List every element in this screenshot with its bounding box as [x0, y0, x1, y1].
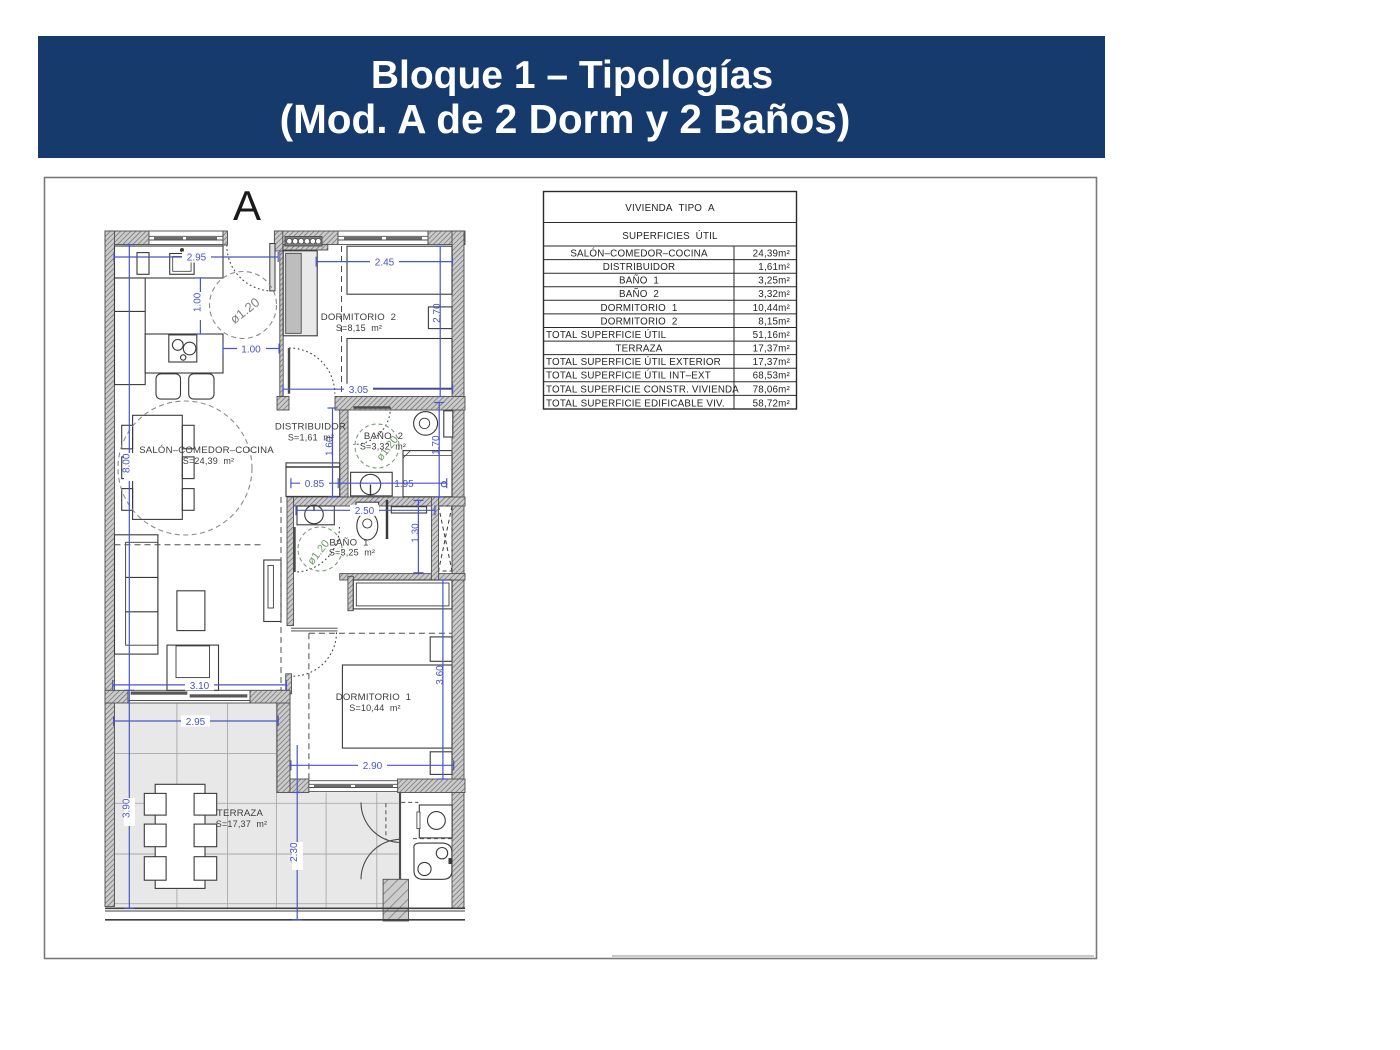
svg-text:58,72m²: 58,72m²	[753, 398, 791, 409]
svg-text:2.95: 2.95	[187, 253, 207, 264]
svg-text:VIVIENDA TIPO A: VIVIENDA TIPO A	[625, 203, 715, 214]
svg-text:3,25m²: 3,25m²	[758, 276, 790, 287]
svg-text:S=17,37 m²: S=17,37 m²	[216, 819, 267, 829]
svg-text:TOTAL SUPERFICIE ÚTIL: TOTAL SUPERFICIE ÚTIL	[546, 330, 667, 341]
svg-text:3.10: 3.10	[190, 681, 210, 692]
svg-text:DORMITORIO 1: DORMITORIO 1	[601, 303, 678, 314]
svg-text:BAÑO 2: BAÑO 2	[364, 431, 403, 442]
svg-text:1.00: 1.00	[192, 292, 203, 312]
svg-text:DORMITORIO 1: DORMITORIO 1	[336, 692, 411, 703]
svg-text:1.00: 1.00	[241, 345, 261, 356]
svg-text:1.70: 1.70	[431, 435, 442, 455]
svg-text:2.30: 2.30	[289, 842, 300, 862]
svg-text:2.90: 2.90	[363, 761, 383, 772]
svg-text:DORMITORIO 2: DORMITORIO 2	[321, 312, 396, 323]
svg-text:SUPERFICIES ÚTIL: SUPERFICIES ÚTIL	[622, 231, 718, 242]
svg-text:SALÓN–COMEDOR–COCINA: SALÓN–COMEDOR–COCINA	[139, 445, 274, 456]
svg-text:TOTAL SUPERFICIE ÚTIL INT–EXT: TOTAL SUPERFICIE ÚTIL INT–EXT	[546, 371, 711, 382]
svg-text:1,61m²: 1,61m²	[758, 262, 790, 273]
svg-text:24,39m²: 24,39m²	[753, 249, 791, 260]
svg-text:DISTRIBUIDOR: DISTRIBUIDOR	[275, 422, 346, 433]
svg-text:3.60: 3.60	[435, 665, 446, 685]
svg-text:SALÓN–COMEDOR–COCINA: SALÓN–COMEDOR–COCINA	[570, 249, 708, 260]
svg-text:1.30: 1.30	[410, 523, 421, 543]
svg-text:S=3,32 m²: S=3,32 m²	[360, 442, 406, 452]
svg-text:2.70: 2.70	[432, 303, 443, 323]
svg-text:TERRAZA: TERRAZA	[217, 808, 264, 819]
svg-text:TERRAZA: TERRAZA	[615, 344, 662, 355]
svg-text:68,53m²: 68,53m²	[753, 371, 791, 382]
svg-text:(Mod. A de 2 Dorm y 2 Baños): (Mod. A de 2 Dorm y 2 Baños)	[280, 96, 851, 142]
svg-text:78,06m²: 78,06m²	[753, 384, 791, 395]
svg-text:A: A	[233, 182, 261, 229]
svg-text:2.50: 2.50	[355, 506, 375, 517]
svg-text:3,32m²: 3,32m²	[758, 289, 790, 300]
svg-text:Bloque 1 – Tipologías: Bloque 1 – Tipologías	[371, 54, 773, 97]
svg-text:BAÑO 2: BAÑO 2	[619, 289, 659, 300]
svg-text:TOTAL SUPERFICIE EDIFICABLE VI: TOTAL SUPERFICIE EDIFICABLE VIV.	[546, 398, 725, 409]
svg-text:S=10,44 m²: S=10,44 m²	[349, 703, 400, 713]
svg-text:TOTAL SUPERFICIE ÚTIL EXTERIOR: TOTAL SUPERFICIE ÚTIL EXTERIOR	[546, 357, 721, 368]
svg-text:1.95: 1.95	[394, 479, 414, 490]
svg-text:3.90: 3.90	[121, 798, 132, 818]
svg-text:3.05: 3.05	[349, 385, 369, 396]
svg-text:8,15m²: 8,15m²	[758, 316, 790, 327]
svg-text:10,44m²: 10,44m²	[753, 303, 791, 314]
svg-text:2.45: 2.45	[375, 258, 395, 269]
svg-text:TOTAL SUPERFICIE CONSTR. VIVIE: TOTAL SUPERFICIE CONSTR. VIVIENDA	[546, 384, 739, 395]
svg-text:51,16m²: 51,16m²	[753, 330, 791, 341]
svg-text:DISTRIBUIDOR: DISTRIBUIDOR	[603, 262, 676, 273]
svg-text:S=3,25 m²: S=3,25 m²	[329, 548, 375, 558]
svg-text:S=24,39 m²: S=24,39 m²	[183, 456, 234, 466]
svg-text:2.95: 2.95	[186, 717, 206, 728]
svg-text:0.85: 0.85	[305, 479, 325, 490]
svg-text:S=1,61 m²: S=1,61 m²	[288, 433, 334, 443]
svg-text:8.00: 8.00	[121, 453, 132, 473]
svg-text:17,37m²: 17,37m²	[753, 357, 791, 368]
svg-text:BAÑO 1: BAÑO 1	[619, 276, 659, 287]
svg-text:S=8,15 m²: S=8,15 m²	[336, 323, 382, 333]
svg-text:17,37m²: 17,37m²	[753, 344, 791, 355]
svg-text:DORMITORIO 2: DORMITORIO 2	[601, 316, 678, 327]
